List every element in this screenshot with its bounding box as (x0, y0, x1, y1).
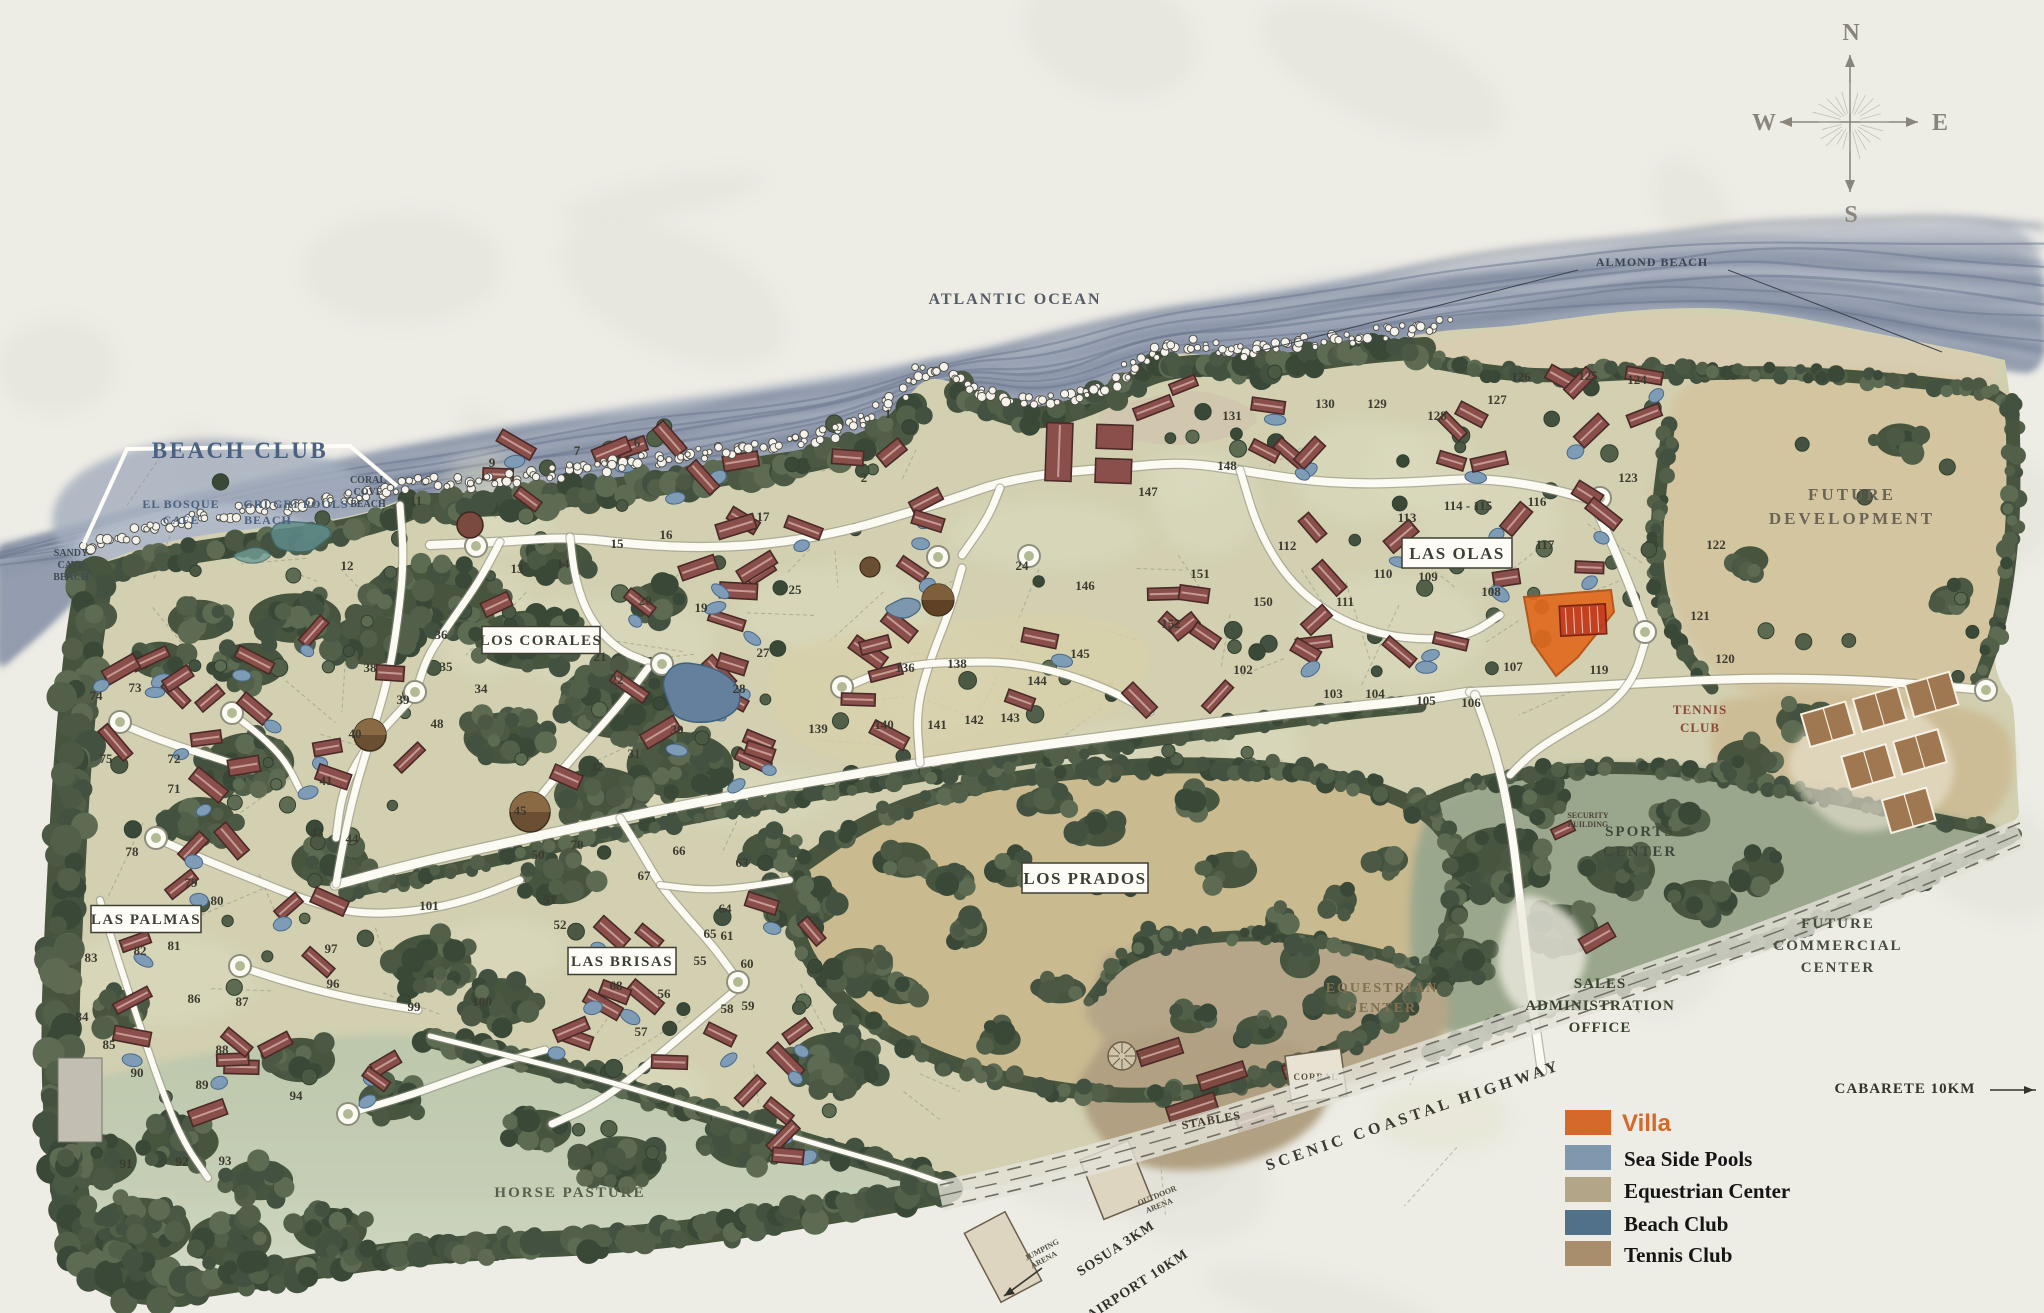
svg-text:DEVELOPMENT: DEVELOPMENT (1769, 509, 1935, 528)
svg-text:119: 119 (1590, 662, 1609, 677)
svg-text:50: 50 (532, 847, 545, 862)
svg-text:65: 65 (704, 926, 718, 941)
svg-text:30: 30 (671, 722, 684, 737)
svg-text:124: 124 (1627, 372, 1647, 387)
svg-text:56: 56 (658, 986, 672, 1001)
svg-text:7: 7 (574, 443, 581, 458)
svg-text:ADMINISTRATION: ADMINISTRATION (1525, 998, 1675, 1014)
svg-text:144: 144 (1027, 673, 1047, 688)
svg-text:106: 106 (1461, 695, 1481, 710)
svg-text:80: 80 (211, 893, 224, 908)
svg-text:152: 152 (1161, 616, 1181, 631)
svg-text:38: 38 (364, 660, 378, 675)
svg-text:81: 81 (168, 938, 181, 953)
svg-text:122: 122 (1706, 537, 1726, 552)
svg-text:32: 32 (591, 759, 604, 774)
svg-text:35: 35 (440, 659, 454, 674)
svg-text:Beach Club: Beach Club (1624, 1212, 1728, 1236)
svg-text:99: 99 (408, 999, 422, 1014)
svg-text:73: 73 (129, 680, 143, 695)
svg-text:HORSE PASTURE: HORSE PASTURE (494, 1185, 645, 1201)
svg-text:Equestrian Center: Equestrian Center (1624, 1179, 1790, 1203)
svg-text:1: 1 (885, 406, 892, 421)
svg-text:66: 66 (673, 843, 687, 858)
svg-text:72: 72 (168, 751, 181, 766)
svg-text:16: 16 (660, 527, 674, 542)
svg-text:43: 43 (311, 825, 325, 840)
svg-text:129: 129 (1367, 396, 1387, 411)
svg-text:63: 63 (736, 855, 750, 870)
svg-text:97: 97 (325, 941, 339, 956)
svg-text:FUTURE: FUTURE (1801, 916, 1875, 932)
svg-text:BEACH: BEACH (350, 499, 386, 510)
svg-text:86: 86 (188, 991, 202, 1006)
svg-text:9: 9 (489, 455, 496, 470)
svg-text:61: 61 (721, 928, 734, 943)
svg-text:LOS CORALES: LOS CORALES (480, 633, 603, 649)
svg-text:34: 34 (475, 681, 489, 696)
svg-text:90: 90 (131, 1065, 144, 1080)
svg-text:84: 84 (76, 1009, 90, 1024)
svg-text:67: 67 (638, 868, 652, 883)
svg-text:55: 55 (694, 953, 708, 968)
svg-text:58: 58 (721, 1001, 735, 1016)
svg-text:128: 128 (1427, 408, 1447, 423)
svg-text:64: 64 (719, 901, 733, 916)
svg-text:52: 52 (554, 917, 567, 932)
svg-text:TENNIS: TENNIS (1673, 702, 1727, 717)
svg-text:COVE: COVE (354, 487, 383, 498)
svg-text:147: 147 (1138, 484, 1158, 499)
svg-text:60: 60 (741, 956, 754, 971)
svg-text:89: 89 (196, 1077, 210, 1092)
svg-text:19: 19 (695, 600, 709, 615)
svg-text:24: 24 (1016, 558, 1030, 573)
svg-text:13: 13 (511, 561, 525, 576)
svg-text:12: 12 (341, 558, 354, 573)
svg-text:143: 143 (1000, 710, 1020, 725)
svg-text:45: 45 (514, 803, 528, 818)
svg-text:138: 138 (947, 656, 967, 671)
svg-text:146: 146 (1075, 578, 1095, 593)
svg-text:123: 123 (1618, 470, 1638, 485)
svg-text:116: 116 (1528, 494, 1547, 509)
svg-text:CENTER: CENTER (1347, 1001, 1417, 1016)
svg-text:BEACH CLUB: BEACH CLUB (152, 438, 328, 463)
svg-text:74: 74 (90, 688, 104, 703)
svg-text:LAS OLAS: LAS OLAS (1409, 544, 1505, 563)
svg-text:68: 68 (610, 978, 624, 993)
svg-text:59: 59 (742, 998, 756, 1013)
svg-text:40: 40 (349, 726, 362, 741)
svg-text:EL BOSQUE: EL BOSQUE (142, 497, 219, 511)
svg-text:LAS PALMAS: LAS PALMAS (91, 912, 201, 928)
svg-text:82: 82 (134, 943, 147, 958)
svg-text:88: 88 (216, 1042, 230, 1057)
svg-text:83: 83 (85, 950, 99, 965)
svg-text:148: 148 (1217, 458, 1237, 473)
svg-text:GRI GRI POOLS: GRI GRI POOLS (243, 497, 348, 511)
svg-text:LOS PRADOS: LOS PRADOS (1023, 869, 1146, 888)
svg-text:103: 103 (1323, 686, 1343, 701)
svg-text:151: 151 (1190, 566, 1210, 581)
svg-text:108: 108 (1481, 584, 1501, 599)
svg-text:78: 78 (126, 844, 140, 859)
svg-text:CAVE: CAVE (57, 560, 84, 571)
svg-text:31: 31 (628, 746, 641, 761)
svg-text:121: 121 (1690, 608, 1710, 623)
svg-text:141: 141 (927, 717, 947, 732)
svg-text:CENTER: CENTER (1603, 844, 1678, 860)
svg-text:101: 101 (419, 898, 439, 913)
svg-text:109: 109 (1418, 569, 1438, 584)
svg-text:SANDY: SANDY (54, 548, 89, 559)
svg-text:Sea Side Pools: Sea Side Pools (1624, 1147, 1752, 1171)
svg-text:44: 44 (346, 831, 360, 846)
svg-text:BUILDING: BUILDING (1568, 820, 1608, 829)
svg-text:113: 113 (1398, 510, 1417, 525)
svg-text:Tennis Club: Tennis Club (1624, 1243, 1732, 1267)
svg-text:OFFICE: OFFICE (1569, 1020, 1632, 1036)
svg-text:94: 94 (290, 1088, 304, 1103)
svg-text:36: 36 (435, 627, 449, 642)
svg-text:W: W (1752, 110, 1776, 136)
svg-text:150: 150 (1253, 594, 1273, 609)
svg-text:120: 120 (1715, 651, 1735, 666)
svg-text:93: 93 (219, 1153, 233, 1168)
svg-text:SPORTS: SPORTS (1605, 824, 1675, 840)
svg-text:14: 14 (557, 556, 571, 571)
svg-text:27: 27 (757, 645, 771, 660)
svg-text:85: 85 (103, 1037, 117, 1052)
svg-text:125: 125 (1578, 368, 1598, 383)
svg-text:71: 71 (168, 781, 181, 796)
svg-text:28: 28 (733, 681, 747, 696)
svg-text:E: E (1932, 110, 1948, 136)
svg-text:48: 48 (431, 716, 445, 731)
svg-text:111: 111 (1336, 594, 1354, 609)
svg-text:79: 79 (185, 875, 199, 890)
svg-text:BEACH: BEACH (244, 513, 292, 527)
svg-text:117: 117 (1536, 537, 1555, 552)
svg-text:96: 96 (327, 976, 341, 991)
svg-text:110: 110 (1374, 566, 1393, 581)
svg-text:51: 51 (544, 892, 557, 907)
svg-text:91: 91 (120, 1156, 133, 1171)
svg-text:CENTER: CENTER (1801, 960, 1876, 976)
svg-text:145: 145 (1070, 646, 1090, 661)
svg-text:25: 25 (789, 582, 803, 597)
svg-text:92: 92 (176, 1154, 189, 1169)
svg-text:11: 11 (410, 493, 422, 508)
svg-text:22: 22 (611, 672, 624, 687)
svg-text:20: 20 (639, 593, 652, 608)
svg-text:COMMERCIAL: COMMERCIAL (1773, 938, 1902, 954)
svg-text:112: 112 (1278, 538, 1297, 553)
svg-text:ATLANTIC OCEAN: ATLANTIC OCEAN (928, 291, 1101, 308)
svg-text:130: 130 (1315, 396, 1335, 411)
svg-text:100: 100 (472, 994, 492, 1009)
svg-text:87: 87 (236, 994, 250, 1009)
svg-text:102: 102 (1233, 662, 1253, 677)
svg-text:41: 41 (320, 773, 333, 788)
svg-text:104: 104 (1365, 686, 1385, 701)
svg-text:57: 57 (635, 1024, 649, 1039)
svg-text:105: 105 (1416, 693, 1436, 708)
svg-text:BEACH: BEACH (53, 572, 89, 583)
svg-text:140: 140 (874, 717, 894, 732)
svg-text:N: N (1842, 20, 1860, 46)
svg-text:17: 17 (757, 509, 771, 524)
svg-text:127: 127 (1487, 392, 1507, 407)
svg-text:75: 75 (100, 751, 114, 766)
svg-text:SALES: SALES (1574, 976, 1627, 992)
svg-text:131: 131 (1222, 408, 1242, 423)
svg-text:S: S (1844, 202, 1857, 228)
svg-text:136: 136 (895, 660, 915, 675)
svg-text:39: 39 (397, 692, 411, 707)
svg-text:ALMOND BEACH: ALMOND BEACH (1596, 255, 1708, 269)
svg-text:6: 6 (634, 435, 641, 450)
svg-text:SECURITY: SECURITY (1567, 811, 1609, 820)
svg-text:LAS BRISAS: LAS BRISAS (571, 954, 673, 970)
svg-text:CORAL: CORAL (350, 475, 386, 486)
svg-text:139: 139 (808, 721, 828, 736)
svg-text:126: 126 (1511, 369, 1531, 384)
svg-text:CAFE: CAFE (163, 513, 200, 527)
svg-text:FUTURE: FUTURE (1808, 485, 1896, 504)
svg-text:114 - 115: 114 - 115 (1444, 498, 1493, 513)
svg-text:107: 107 (1503, 659, 1523, 674)
svg-text:15: 15 (611, 536, 625, 551)
svg-text:142: 142 (964, 712, 984, 727)
svg-text:CLUB: CLUB (1680, 720, 1720, 735)
svg-text:70: 70 (571, 837, 584, 852)
svg-text:EQUESTRIAN: EQUESTRIAN (1326, 981, 1439, 996)
svg-text:Villa: Villa (1622, 1110, 1672, 1137)
svg-text:2: 2 (861, 470, 868, 485)
svg-text:CABARETE 10KM: CABARETE 10KM (1835, 1081, 1976, 1097)
